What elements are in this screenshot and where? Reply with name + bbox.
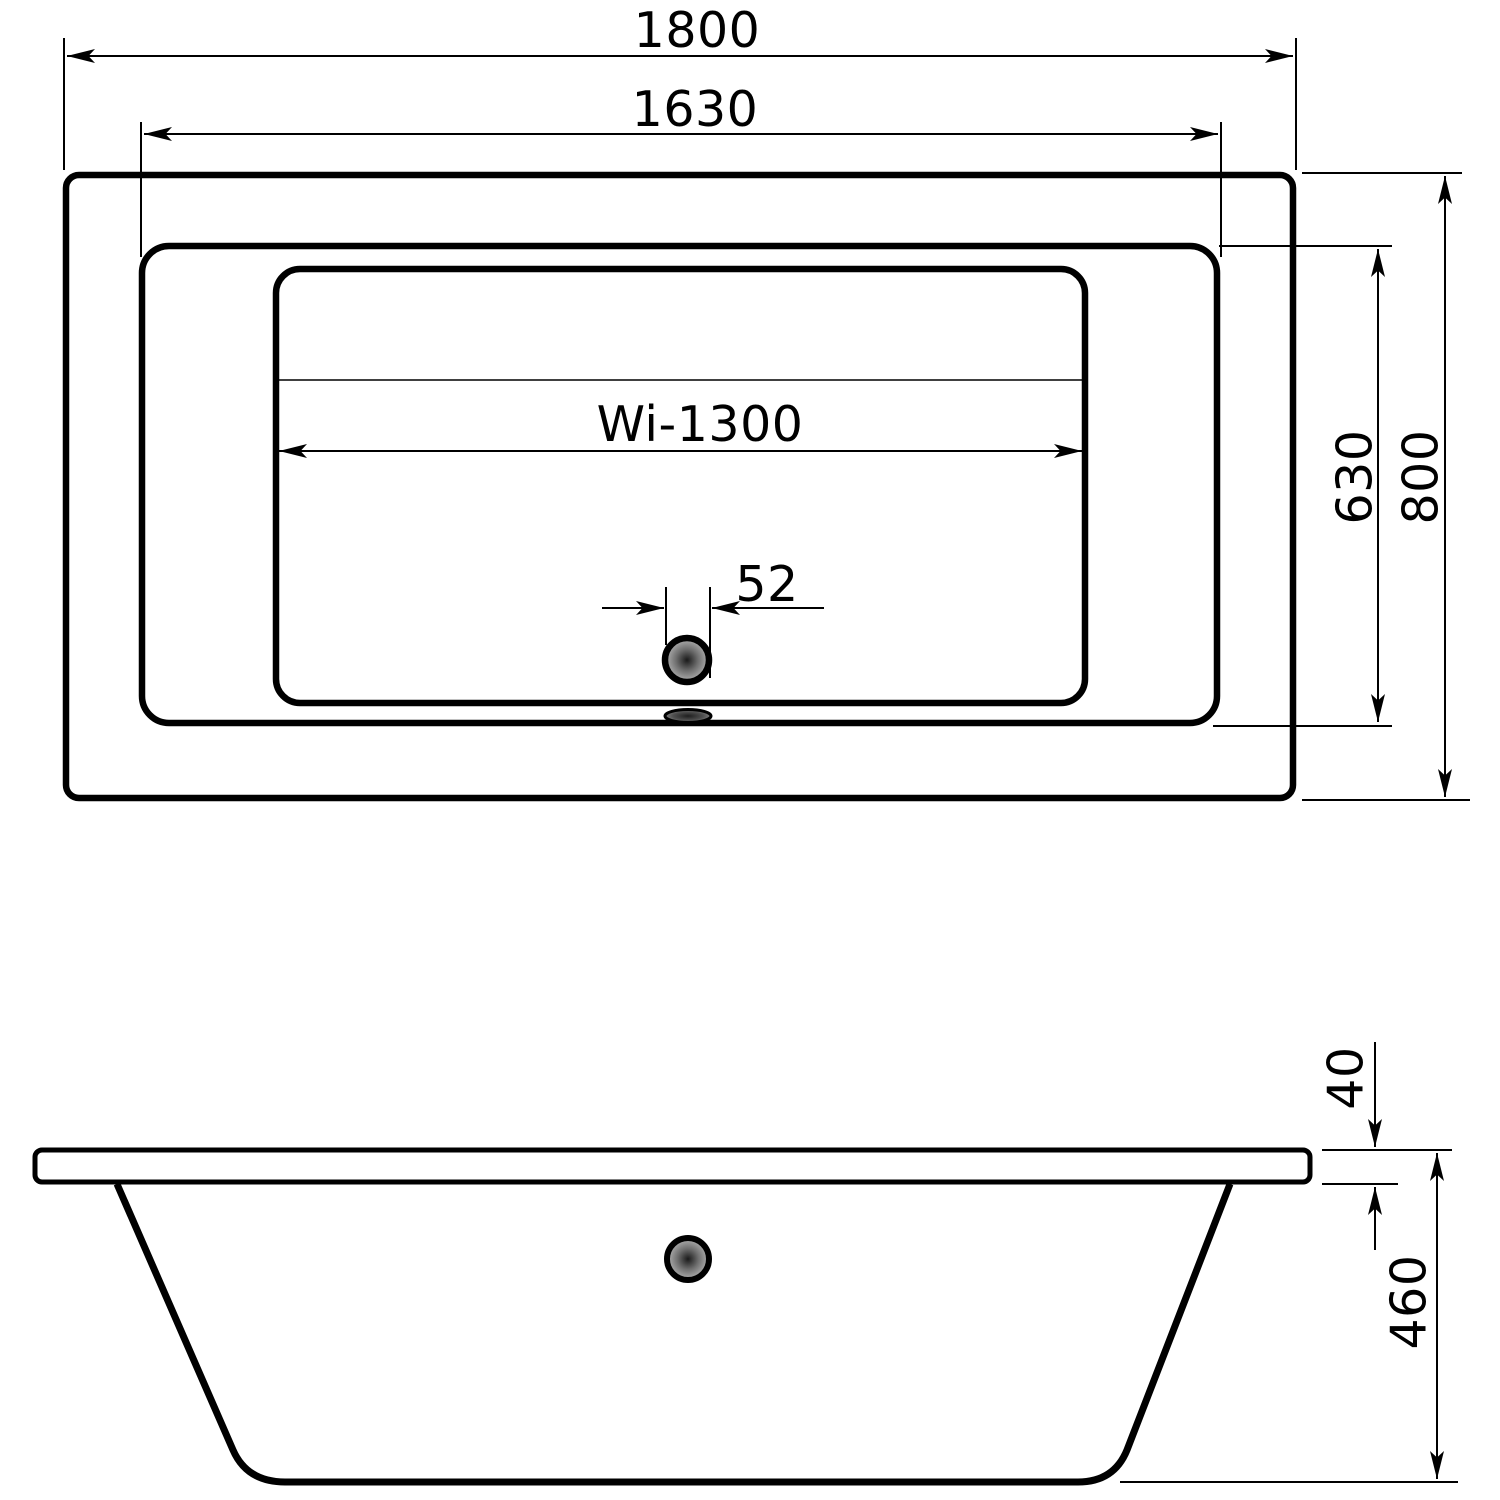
dim-label-wi1300: Wi-1300 bbox=[597, 396, 804, 453]
tub-body-profile bbox=[117, 1184, 1230, 1482]
dim-label-52: 52 bbox=[735, 556, 798, 613]
drain-icon bbox=[665, 638, 709, 682]
dim-label-40: 40 bbox=[1318, 1046, 1375, 1109]
side-view: 40 460 bbox=[35, 1042, 1458, 1482]
dim-label-1800: 1800 bbox=[634, 2, 761, 59]
dim-label-800: 800 bbox=[1393, 429, 1450, 524]
dim-label-1630: 1630 bbox=[632, 81, 759, 138]
drawing-canvas: 1800 1630 Wi-1300 52 630 800 bbox=[0, 0, 1500, 1500]
dim-label-460: 460 bbox=[1381, 1254, 1438, 1349]
overflow-icon bbox=[665, 710, 711, 723]
side-drain-icon bbox=[667, 1238, 709, 1280]
rim-flange bbox=[35, 1150, 1310, 1182]
top-view: 1800 1630 Wi-1300 52 630 800 bbox=[64, 2, 1470, 800]
dim-label-630: 630 bbox=[1327, 429, 1384, 524]
bathtub-technical-drawing: 1800 1630 Wi-1300 52 630 800 bbox=[0, 0, 1500, 1500]
